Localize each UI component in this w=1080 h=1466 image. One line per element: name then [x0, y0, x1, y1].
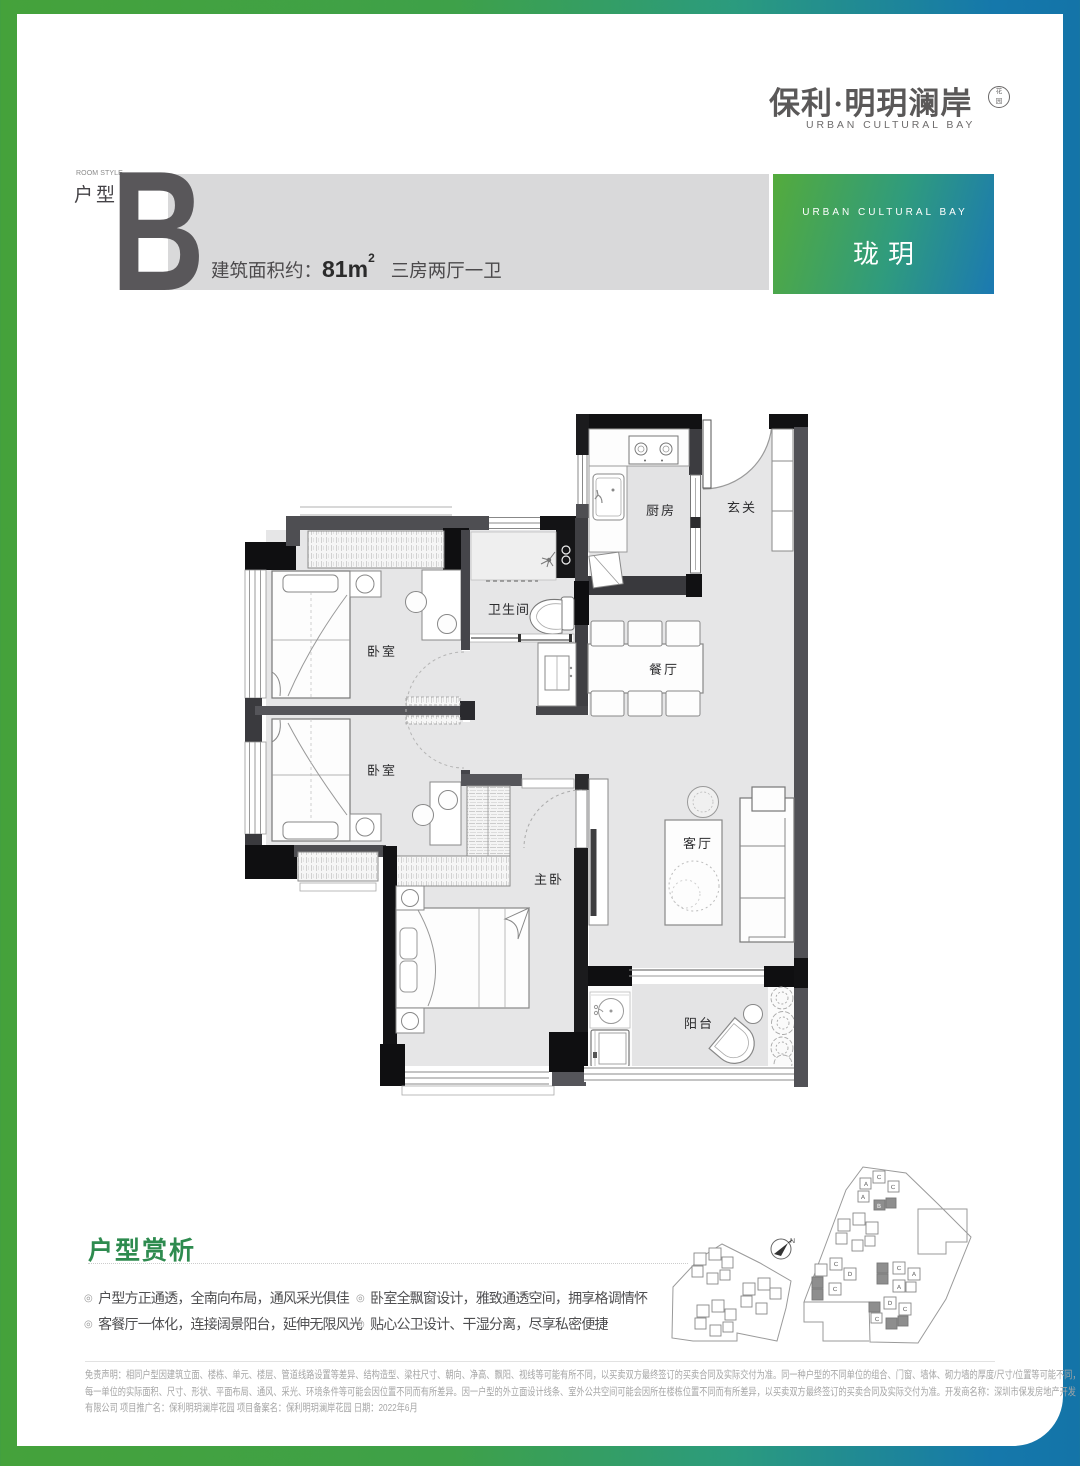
svg-text:A: A: [912, 1271, 916, 1278]
svg-text:D: D: [888, 1300, 893, 1307]
svg-text:A: A: [897, 1284, 901, 1291]
svg-text:主卧: 主卧: [534, 872, 564, 887]
svg-text:玄关: 玄关: [727, 500, 757, 515]
svg-text:阳台: 阳台: [684, 1016, 714, 1031]
svg-text:C: C: [891, 1184, 896, 1191]
svg-text:卧室: 卧室: [367, 763, 397, 778]
svg-text:C: C: [897, 1265, 902, 1272]
svg-text:B: B: [877, 1203, 881, 1210]
svg-text:卫生间: 卫生间: [488, 602, 530, 617]
svg-text:C: C: [834, 1261, 839, 1268]
svg-text:C: C: [903, 1306, 908, 1313]
svg-text:C: C: [877, 1174, 882, 1181]
svg-text:厨房: 厨房: [646, 503, 676, 518]
svg-text:C: C: [875, 1316, 880, 1323]
svg-text:A: A: [864, 1181, 868, 1188]
svg-text:N: N: [790, 1238, 795, 1245]
svg-text:餐厅: 餐厅: [649, 662, 679, 677]
svg-text:C: C: [833, 1286, 838, 1293]
svg-text:客厅: 客厅: [683, 836, 713, 851]
svg-text:卧室: 卧室: [367, 644, 397, 659]
svg-text:A: A: [861, 1194, 865, 1201]
svg-text:D: D: [848, 1271, 853, 1278]
